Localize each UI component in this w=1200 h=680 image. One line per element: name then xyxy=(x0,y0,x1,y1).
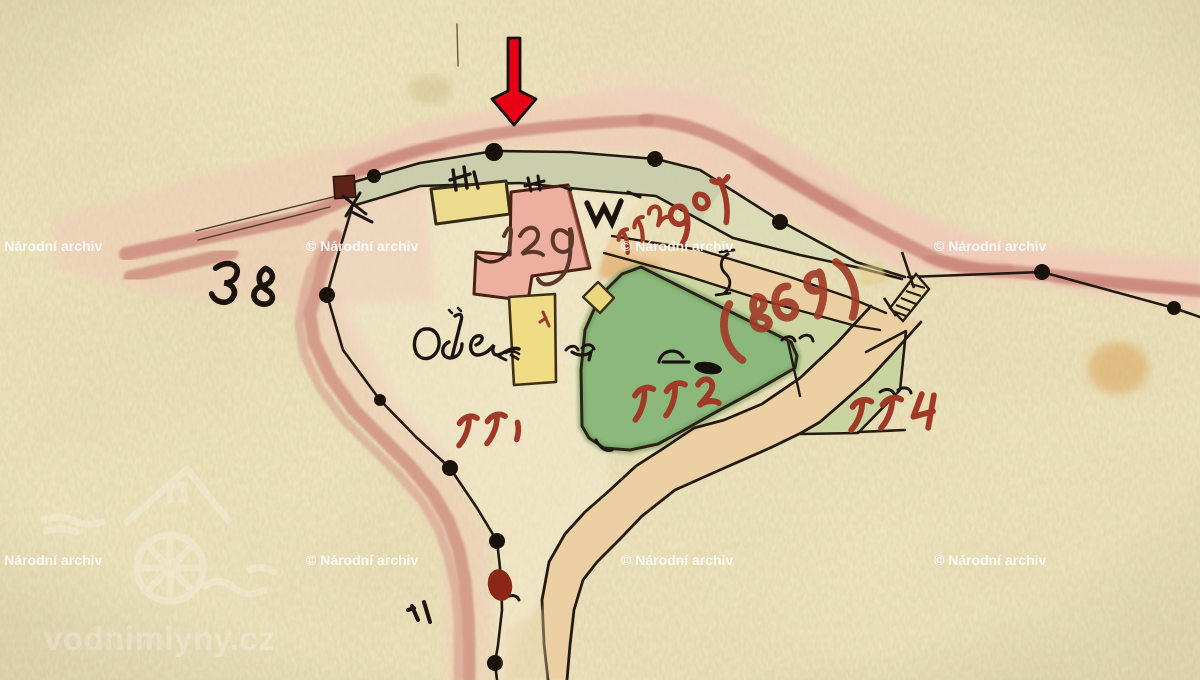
svg-text:© Národní archiv: © Národní archiv xyxy=(306,238,418,254)
svg-text:© Národní archiv: © Národní archiv xyxy=(934,238,1046,254)
svg-text:© Národní archiv: © Národní archiv xyxy=(621,238,733,254)
svg-text:© Národní archiv: © Národní archiv xyxy=(306,552,418,568)
svg-text:© Národní archiv: © Národní archiv xyxy=(934,552,1046,568)
svg-text:© Národní archiv: © Národní archiv xyxy=(0,238,102,254)
svg-text:© Národní archiv: © Národní archiv xyxy=(621,552,733,568)
svg-text:vodnimlyny.cz: vodnimlyny.cz xyxy=(44,620,275,657)
svg-text:© Národní archiv: © Národní archiv xyxy=(0,552,102,568)
